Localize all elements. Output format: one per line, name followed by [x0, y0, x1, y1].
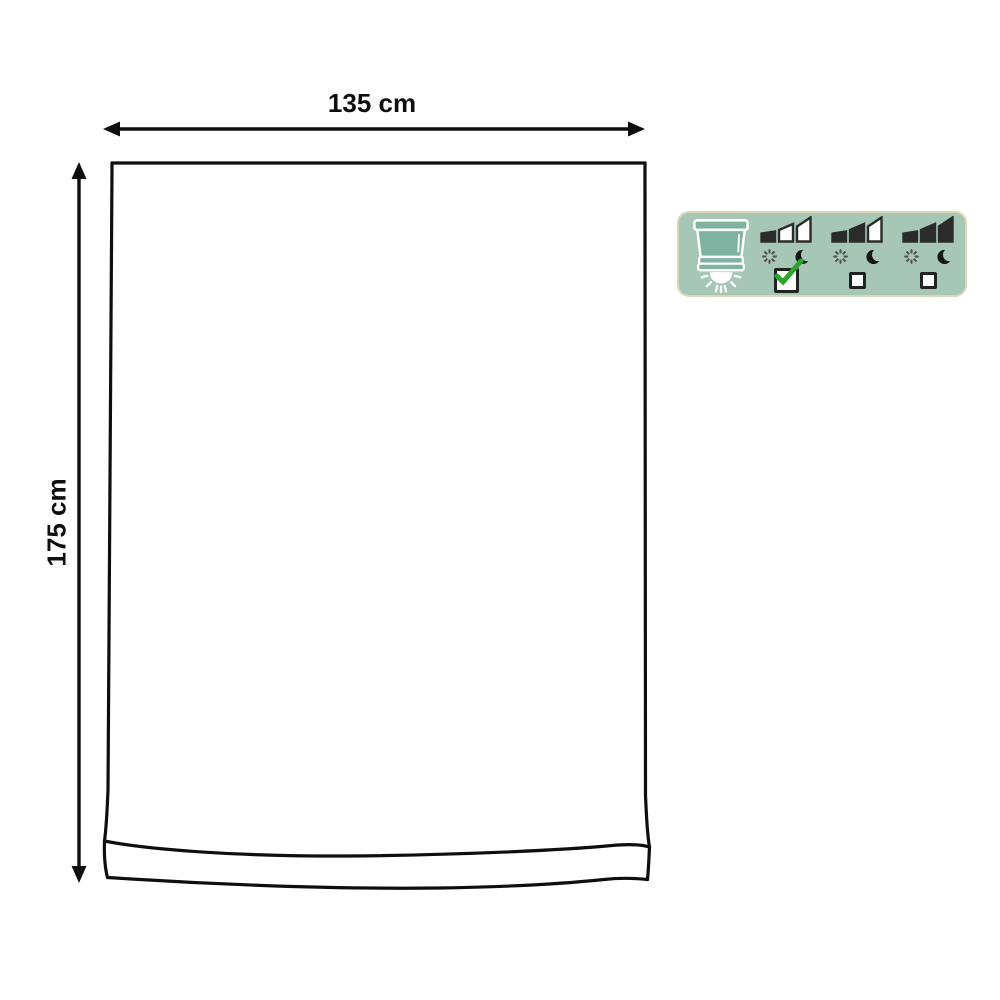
- checkbox-wrapper: [769, 267, 803, 294]
- height-dimension-label: 175 cm: [42, 423, 73, 623]
- roman-blind-icon: [690, 218, 752, 294]
- curtain-drawing: [0, 0, 1000, 1000]
- light-level-options: [759, 216, 955, 294]
- hem-fold-line: [105, 841, 650, 856]
- width-dimension-label: 135 cm: [272, 88, 472, 119]
- height-arrow: [72, 162, 87, 883]
- light-level-bars-icon: [760, 216, 812, 243]
- curtain-outline: [104, 163, 649, 888]
- arrowhead-left-icon: [103, 122, 120, 137]
- arrowhead-right-icon: [628, 122, 645, 137]
- sun-icon: [903, 248, 920, 265]
- moon-icon: [936, 248, 953, 265]
- moon-icon: [865, 248, 882, 265]
- checkbox-wrapper: [840, 267, 874, 294]
- checkbox-wrapper: [911, 267, 945, 294]
- light-level-1: [759, 216, 813, 294]
- light-level-2: [830, 216, 884, 294]
- arrowhead-bottom-icon: [72, 866, 87, 883]
- checkbox-unchecked: [849, 272, 866, 289]
- day-night-row: [832, 247, 882, 265]
- light-level-bars-icon: [831, 216, 883, 243]
- light-level-bars-icon: [902, 216, 954, 243]
- light-filtering-badge: [677, 211, 967, 297]
- hem-bottom-line: [108, 878, 648, 889]
- light-level-3: [901, 216, 955, 294]
- checkbox-unchecked: [920, 272, 937, 289]
- day-night-row: [903, 247, 953, 265]
- sun-icon: [832, 248, 849, 265]
- product-dimension-diagram: 135 cm 175 cm: [0, 0, 1000, 1000]
- check-mark-icon: [771, 258, 805, 288]
- light-glow-icon: [702, 272, 741, 292]
- arrowhead-top-icon: [72, 162, 87, 179]
- width-arrow: [103, 122, 645, 137]
